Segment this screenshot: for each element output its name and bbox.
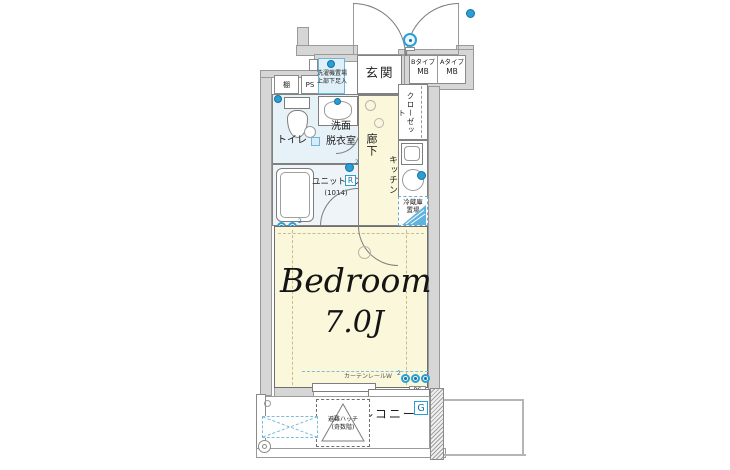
outlet-icon — [345, 163, 354, 172]
washing-label-2: 上部下足入 — [317, 79, 346, 86]
outlet-icon — [401, 374, 410, 383]
meter-box-a-mb: MB — [438, 68, 466, 77]
curtain-rail-label: カーテンレールW — [336, 374, 400, 381]
ac-outdoor-unit-x — [262, 416, 318, 438]
kitchen-label: キッチン — [384, 146, 397, 204]
floor-drain-icon — [311, 137, 320, 146]
bedroom-size: 7.0J — [280, 306, 428, 341]
downlight-circle — [365, 100, 376, 111]
neighbor-wall-line — [444, 399, 524, 401]
meter-box-b-type: Bタイプ — [409, 59, 437, 66]
closet-label: クローゼット — [402, 88, 414, 138]
icon-count-sup: 2 — [298, 218, 302, 225]
r-box: R — [345, 175, 356, 186]
shelf-label: 棚 — [274, 81, 299, 89]
kitchen-faucet-icon — [417, 171, 426, 180]
neighbor-wall-line — [522, 399, 524, 456]
balcony-rail — [256, 448, 446, 458]
meter-box-a-type: Aタイプ — [438, 59, 466, 66]
outlet-icon — [411, 374, 420, 383]
downlight-circle — [264, 400, 271, 407]
window-pane — [312, 383, 376, 392]
door-intercom-icon — [403, 33, 417, 47]
entrance-door-swing-left — [353, 3, 406, 56]
neighbor-wall-line — [444, 454, 526, 456]
toilet-tank — [284, 97, 310, 109]
fridge-corner-mark — [402, 205, 426, 225]
kitchen-sink-basin — [404, 146, 420, 161]
ceiling-dash-line — [278, 233, 424, 234]
balcony-right-wall — [430, 388, 444, 460]
door-step-icon — [405, 47, 415, 51]
outlet-count-sup: 2 — [397, 370, 401, 377]
downlight-circle — [358, 246, 371, 259]
floor-plan: Bタイプ MB Aタイプ MB 玄関 棚 PS 洗濯機置場 上部下足入 トイレ … — [0, 0, 730, 470]
toilet-control-icon — [274, 95, 282, 103]
meter-box-b-mb: MB — [409, 68, 437, 77]
gas-meter-box: G — [414, 401, 428, 415]
downlight-circle — [374, 118, 384, 128]
hatch-label-1: 避難ハッチ — [316, 417, 370, 424]
corridor-label: 廊下 — [363, 126, 377, 164]
washing-label-1: 洗濯機置場 — [317, 71, 346, 78]
bedroom-name: Bedroom — [280, 262, 428, 300]
toilet-label: トイレ — [272, 135, 312, 147]
washer-faucet-icon — [327, 60, 335, 68]
hatch-label-2: (奇数階) — [316, 425, 370, 432]
genkan-label: 玄関 — [358, 66, 402, 80]
wall-left — [260, 70, 272, 396]
vanity-faucet-icon — [334, 98, 341, 105]
bathtub-inner — [280, 172, 310, 218]
wall-right — [428, 86, 440, 390]
curtain-rail-line — [302, 371, 428, 372]
porch-light-icon — [466, 9, 475, 18]
outlet-icon — [421, 374, 430, 383]
closet-hanger-pipe — [421, 86, 422, 138]
drain-cap-inner — [262, 444, 267, 449]
